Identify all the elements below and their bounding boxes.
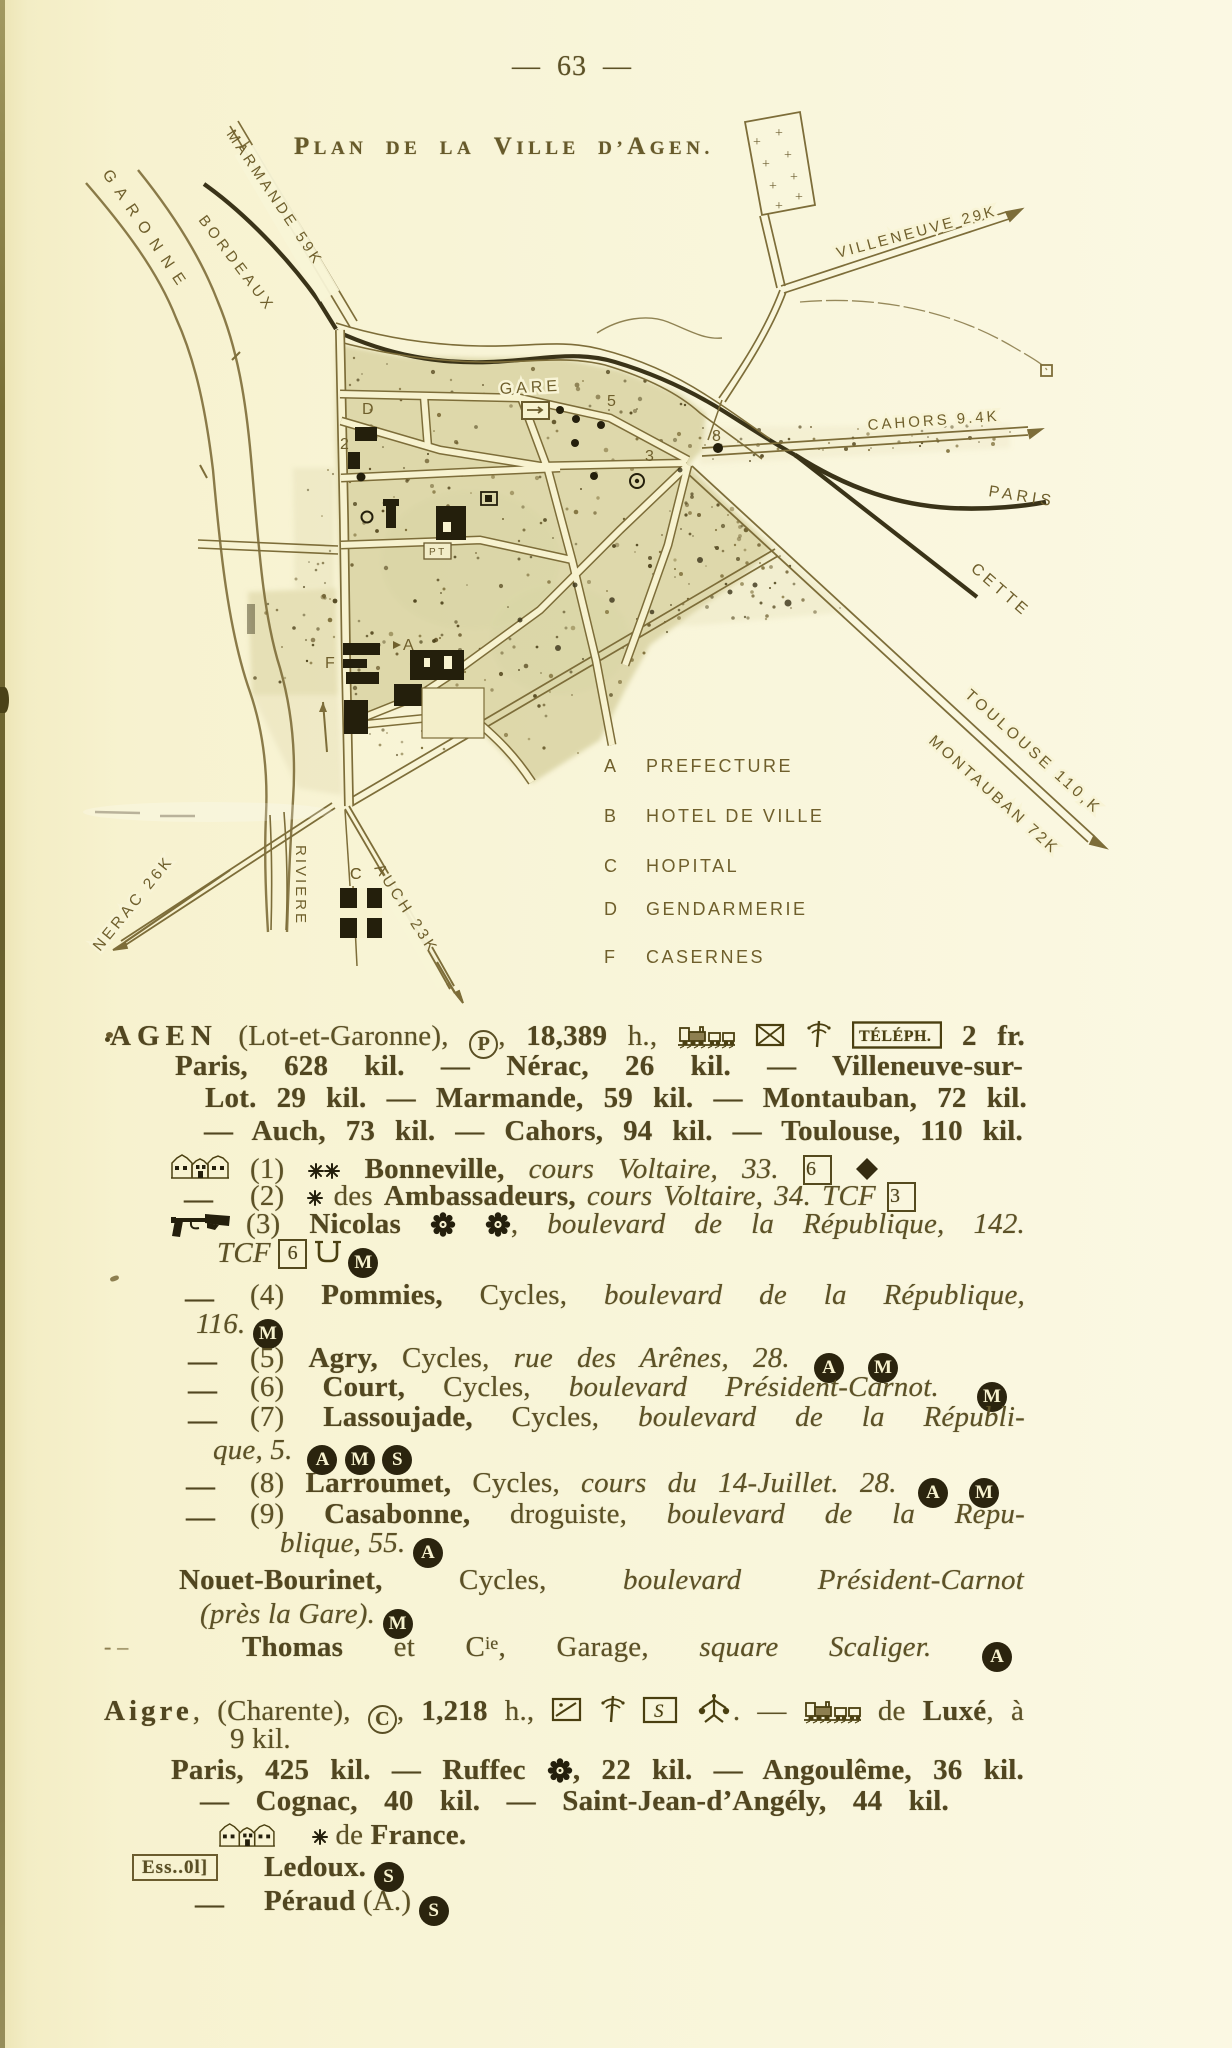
svg-text:5: 5 [607, 393, 616, 410]
svg-text:CETTE: CETTE [967, 560, 1033, 620]
svg-text:S: S [654, 1701, 664, 1722]
svg-text:D: D [604, 899, 620, 919]
svg-text:+: + [795, 190, 803, 205]
svg-text:GARE: GARE [499, 378, 561, 398]
svg-text:PREFECTURE: PREFECTURE [646, 756, 793, 776]
svg-text:A: A [604, 756, 619, 776]
svg-text:3: 3 [645, 448, 654, 465]
svg-text:VILLENEUVE 29K: VILLENEUVE 29K [835, 203, 999, 262]
svg-text:F: F [604, 947, 618, 967]
svg-text:TOULOUSE 110,K: TOULOUSE 110,K [961, 686, 1104, 818]
svg-text:+: + [753, 135, 761, 150]
svg-text:P T: P T [429, 547, 444, 558]
svg-text:HOPITAL: HOPITAL [646, 856, 739, 876]
svg-text:BORDEAUX: BORDEAUX [195, 212, 279, 315]
svg-text:CASERNES: CASERNES [646, 947, 765, 967]
svg-text:F: F [325, 655, 335, 672]
svg-text:HOTEL DE VILLE: HOTEL DE VILLE [646, 806, 824, 826]
svg-text:TÉLÉPH.: TÉLÉPH. [859, 1026, 931, 1045]
svg-text:B: B [604, 806, 619, 826]
svg-text:+: + [762, 157, 770, 172]
svg-text:GARONNE: GARONNE [99, 167, 194, 296]
svg-text:2: 2 [340, 436, 349, 453]
svg-text:+: + [775, 126, 783, 141]
svg-text:+: + [775, 199, 783, 214]
svg-text:A: A [403, 637, 414, 654]
svg-text:+: + [769, 179, 777, 194]
svg-text:+: + [790, 170, 798, 185]
svg-text:C: C [350, 866, 362, 883]
svg-text:C: C [604, 856, 620, 876]
svg-text:GENDARMERIE: GENDARMERIE [646, 899, 808, 919]
svg-text:8: 8 [712, 428, 721, 445]
svg-text:+: + [784, 148, 792, 163]
svg-text:RIVIERE: RIVIERE [292, 845, 309, 926]
svg-text:D: D [362, 401, 374, 418]
